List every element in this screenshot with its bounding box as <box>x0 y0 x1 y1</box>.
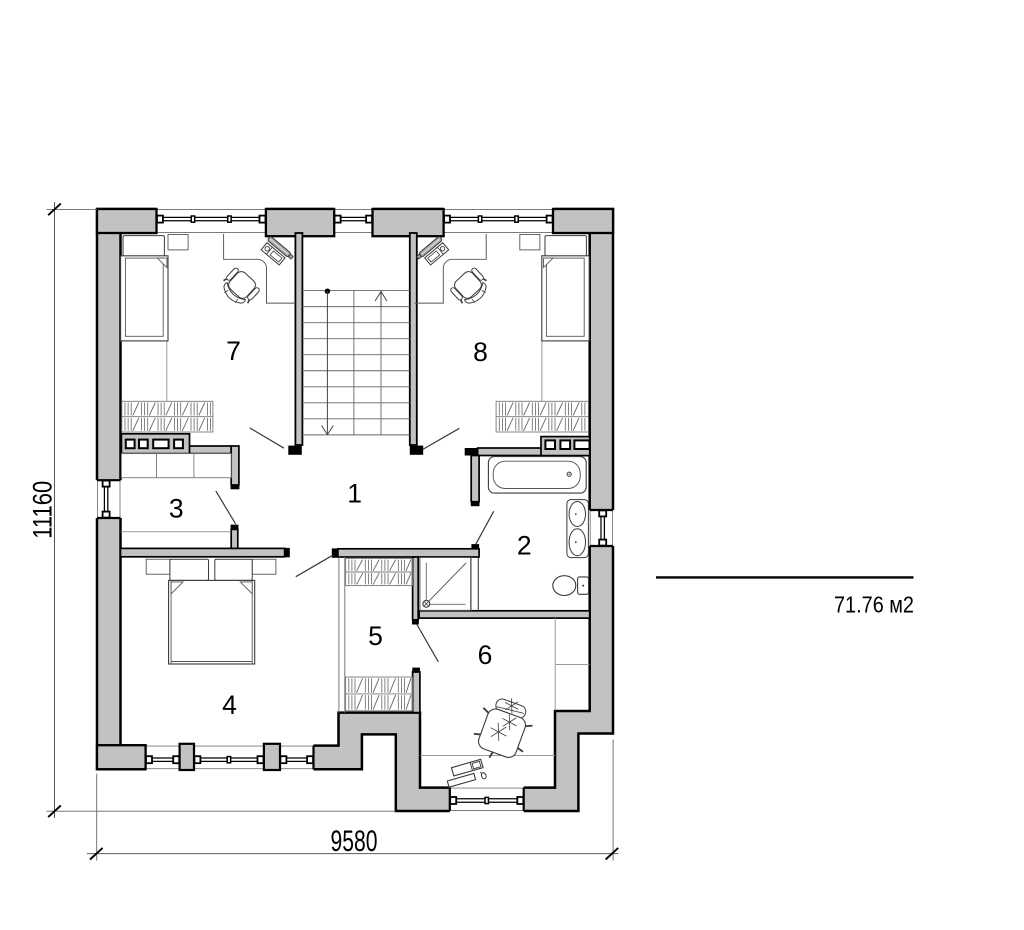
svg-text:2: 2 <box>517 531 532 561</box>
svg-text:7: 7 <box>226 336 241 366</box>
svg-text:6: 6 <box>478 640 493 670</box>
svg-text:1: 1 <box>347 479 362 509</box>
svg-text:71.76 м2: 71.76 м2 <box>834 592 914 618</box>
svg-text:3: 3 <box>169 494 184 524</box>
svg-text:8: 8 <box>473 337 488 367</box>
svg-text:4: 4 <box>222 690 237 720</box>
svg-text:11160: 11160 <box>28 481 58 539</box>
svg-text:9580: 9580 <box>331 825 378 858</box>
svg-text:5: 5 <box>368 621 383 651</box>
